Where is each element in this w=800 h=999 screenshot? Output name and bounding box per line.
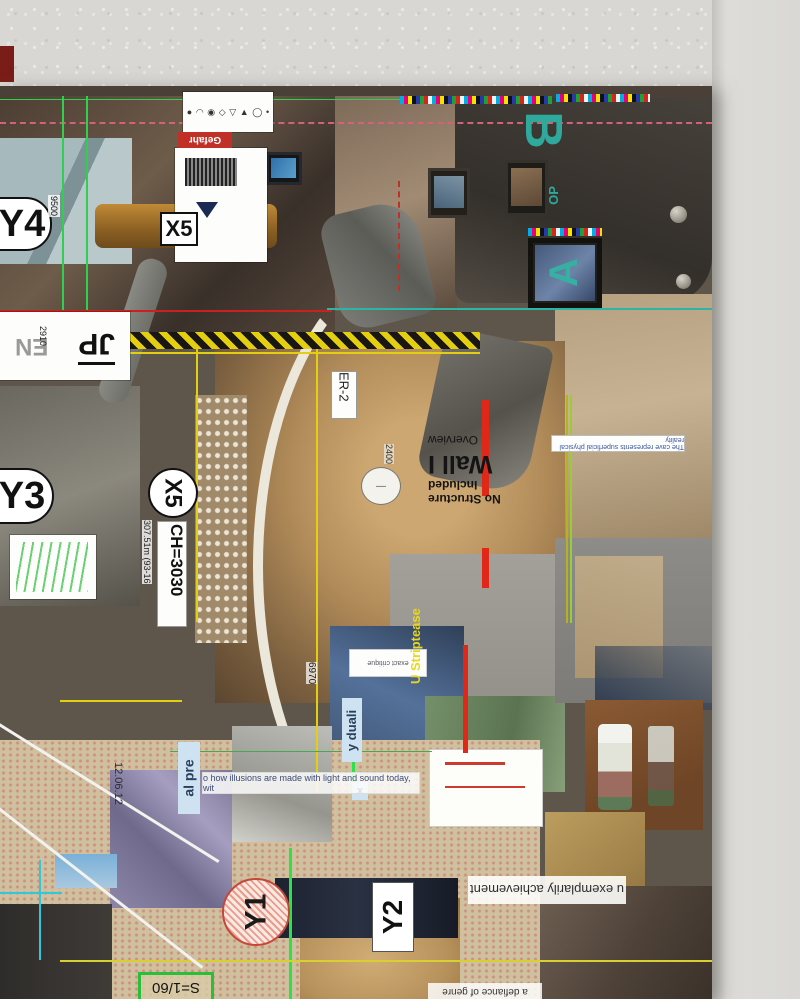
cad-yellow-hline-bottom — [60, 960, 712, 962]
exemplarily-strip: u exemplarily achievement — [468, 876, 626, 904]
survey-ch3030: CH=3030 — [158, 522, 186, 626]
cad-green-hline-mid — [170, 751, 432, 752]
photo-lace-knit-band — [195, 395, 247, 643]
small-dot-icon: • — [266, 107, 269, 117]
cad-yellow-vline — [316, 336, 318, 792]
grid-label-x5-mid: X5 — [148, 468, 198, 518]
photo-dark-speckle-block — [275, 878, 458, 938]
triangle-glyph — [196, 202, 218, 218]
cad-pink-dashed-hline — [0, 122, 712, 124]
overview-text: Overview — [428, 433, 478, 447]
cloud-icon: ◠ — [196, 107, 204, 118]
letter-op: OP — [546, 186, 561, 205]
color-calibration-strip — [556, 94, 650, 102]
cad-teal-hline — [327, 308, 712, 310]
letter-a: A — [542, 258, 587, 287]
down-icon: ▽ — [229, 107, 236, 118]
illusions-strip: o how illusions are made with light and … — [203, 773, 419, 793]
icon-toolbar: ● ◠ ◉ ◇ ▽ ▲ ◯ • — [183, 92, 273, 132]
no-structure-text: No Structure Included — [428, 478, 538, 506]
dim-9500: 9500 — [48, 195, 60, 217]
wall-right-panel — [712, 0, 800, 999]
target-icon: ◉ — [207, 107, 215, 118]
wall-title-text: Wall I — [428, 450, 492, 478]
al-pre-strip: al pre — [178, 742, 200, 814]
cave-strip: The cave represents superficial physical… — [552, 436, 684, 451]
green-bright-vline — [289, 848, 292, 999]
dim-2910: 2910 — [38, 326, 48, 346]
collage-poster: ● ◠ ◉ ◇ ▽ ▲ ◯ • Y4 9500 X5 Y3 X5 Y1 Y2 J… — [0, 86, 712, 999]
survey-chainage: 307.51m (93-16 — [142, 520, 152, 584]
dim-6970: 6970 — [306, 662, 317, 684]
form-red-line — [445, 786, 525, 788]
grid-label-y1: Y1 — [222, 878, 290, 946]
green-scribble — [16, 542, 88, 592]
cad-green-vline — [62, 96, 64, 322]
triangle-icon: ▲ — [240, 107, 249, 117]
date-stamp: 12.06.12 — [112, 762, 124, 805]
cad-olive-vline — [566, 395, 568, 623]
duali-strip: y duali — [342, 698, 362, 762]
grid-label-y3: Y3 — [0, 468, 54, 524]
photo-floral-cup-right — [648, 726, 674, 806]
rivet — [670, 206, 687, 223]
cad-cyan-vline — [39, 860, 41, 960]
label-er2: ER-2 — [332, 372, 356, 418]
ring-icon: ◯ — [252, 107, 262, 118]
color-calibration-strip — [400, 96, 552, 104]
cad-green-vline — [86, 96, 88, 322]
rivet — [676, 274, 691, 289]
red-bar-striptease — [463, 645, 468, 753]
framed-photo-a: A — [528, 238, 602, 308]
wall-overview-line: Wall I Overview — [428, 431, 538, 478]
striptease-text: U Striptease — [408, 608, 423, 684]
monitor-screen — [434, 176, 464, 208]
cad-yellowgreen-vline — [570, 395, 572, 623]
red-edge-tab — [0, 46, 14, 82]
tv-blue-screen — [271, 158, 296, 178]
letter-b: B — [513, 111, 573, 149]
cad-cyan-hline — [0, 892, 62, 894]
cad-red-dashed-vline — [398, 181, 400, 291]
survey-marker-circle: — — [362, 468, 400, 504]
noise-print-block — [185, 158, 237, 186]
cad-yellow-hline-short — [60, 700, 182, 702]
grid-label-x5-top: X5 — [160, 212, 198, 246]
scale-box: S=1/60 — [138, 972, 214, 999]
color-calibration-strip — [528, 228, 602, 236]
gefahr-label: Gefahr — [178, 132, 232, 148]
red-bar-vertical — [482, 548, 489, 588]
dot-icon: ● — [187, 107, 192, 117]
wall-title-block: No Structure Included Wall I Overview — [428, 446, 538, 506]
defiance-strip: a defiance of genre — [428, 983, 542, 999]
monitor-screen-2 — [511, 168, 542, 206]
photo-dark-bottom-left — [0, 904, 112, 999]
cad-yellow-vline — [196, 336, 198, 622]
hazard-stripe-band — [120, 332, 480, 349]
grid-label-y2: Y2 — [372, 882, 414, 952]
form-red-line — [445, 762, 505, 765]
grid-label-y4: Y4 — [0, 197, 52, 251]
dim-2400: 2400 — [384, 444, 394, 464]
cad-yellow-hline — [120, 352, 480, 354]
photo-floral-cup-left — [598, 724, 632, 810]
jp-text: JP — [78, 327, 115, 366]
jp-en-card: JP EN — [0, 312, 130, 380]
diamond-icon: ◇ — [219, 107, 226, 118]
